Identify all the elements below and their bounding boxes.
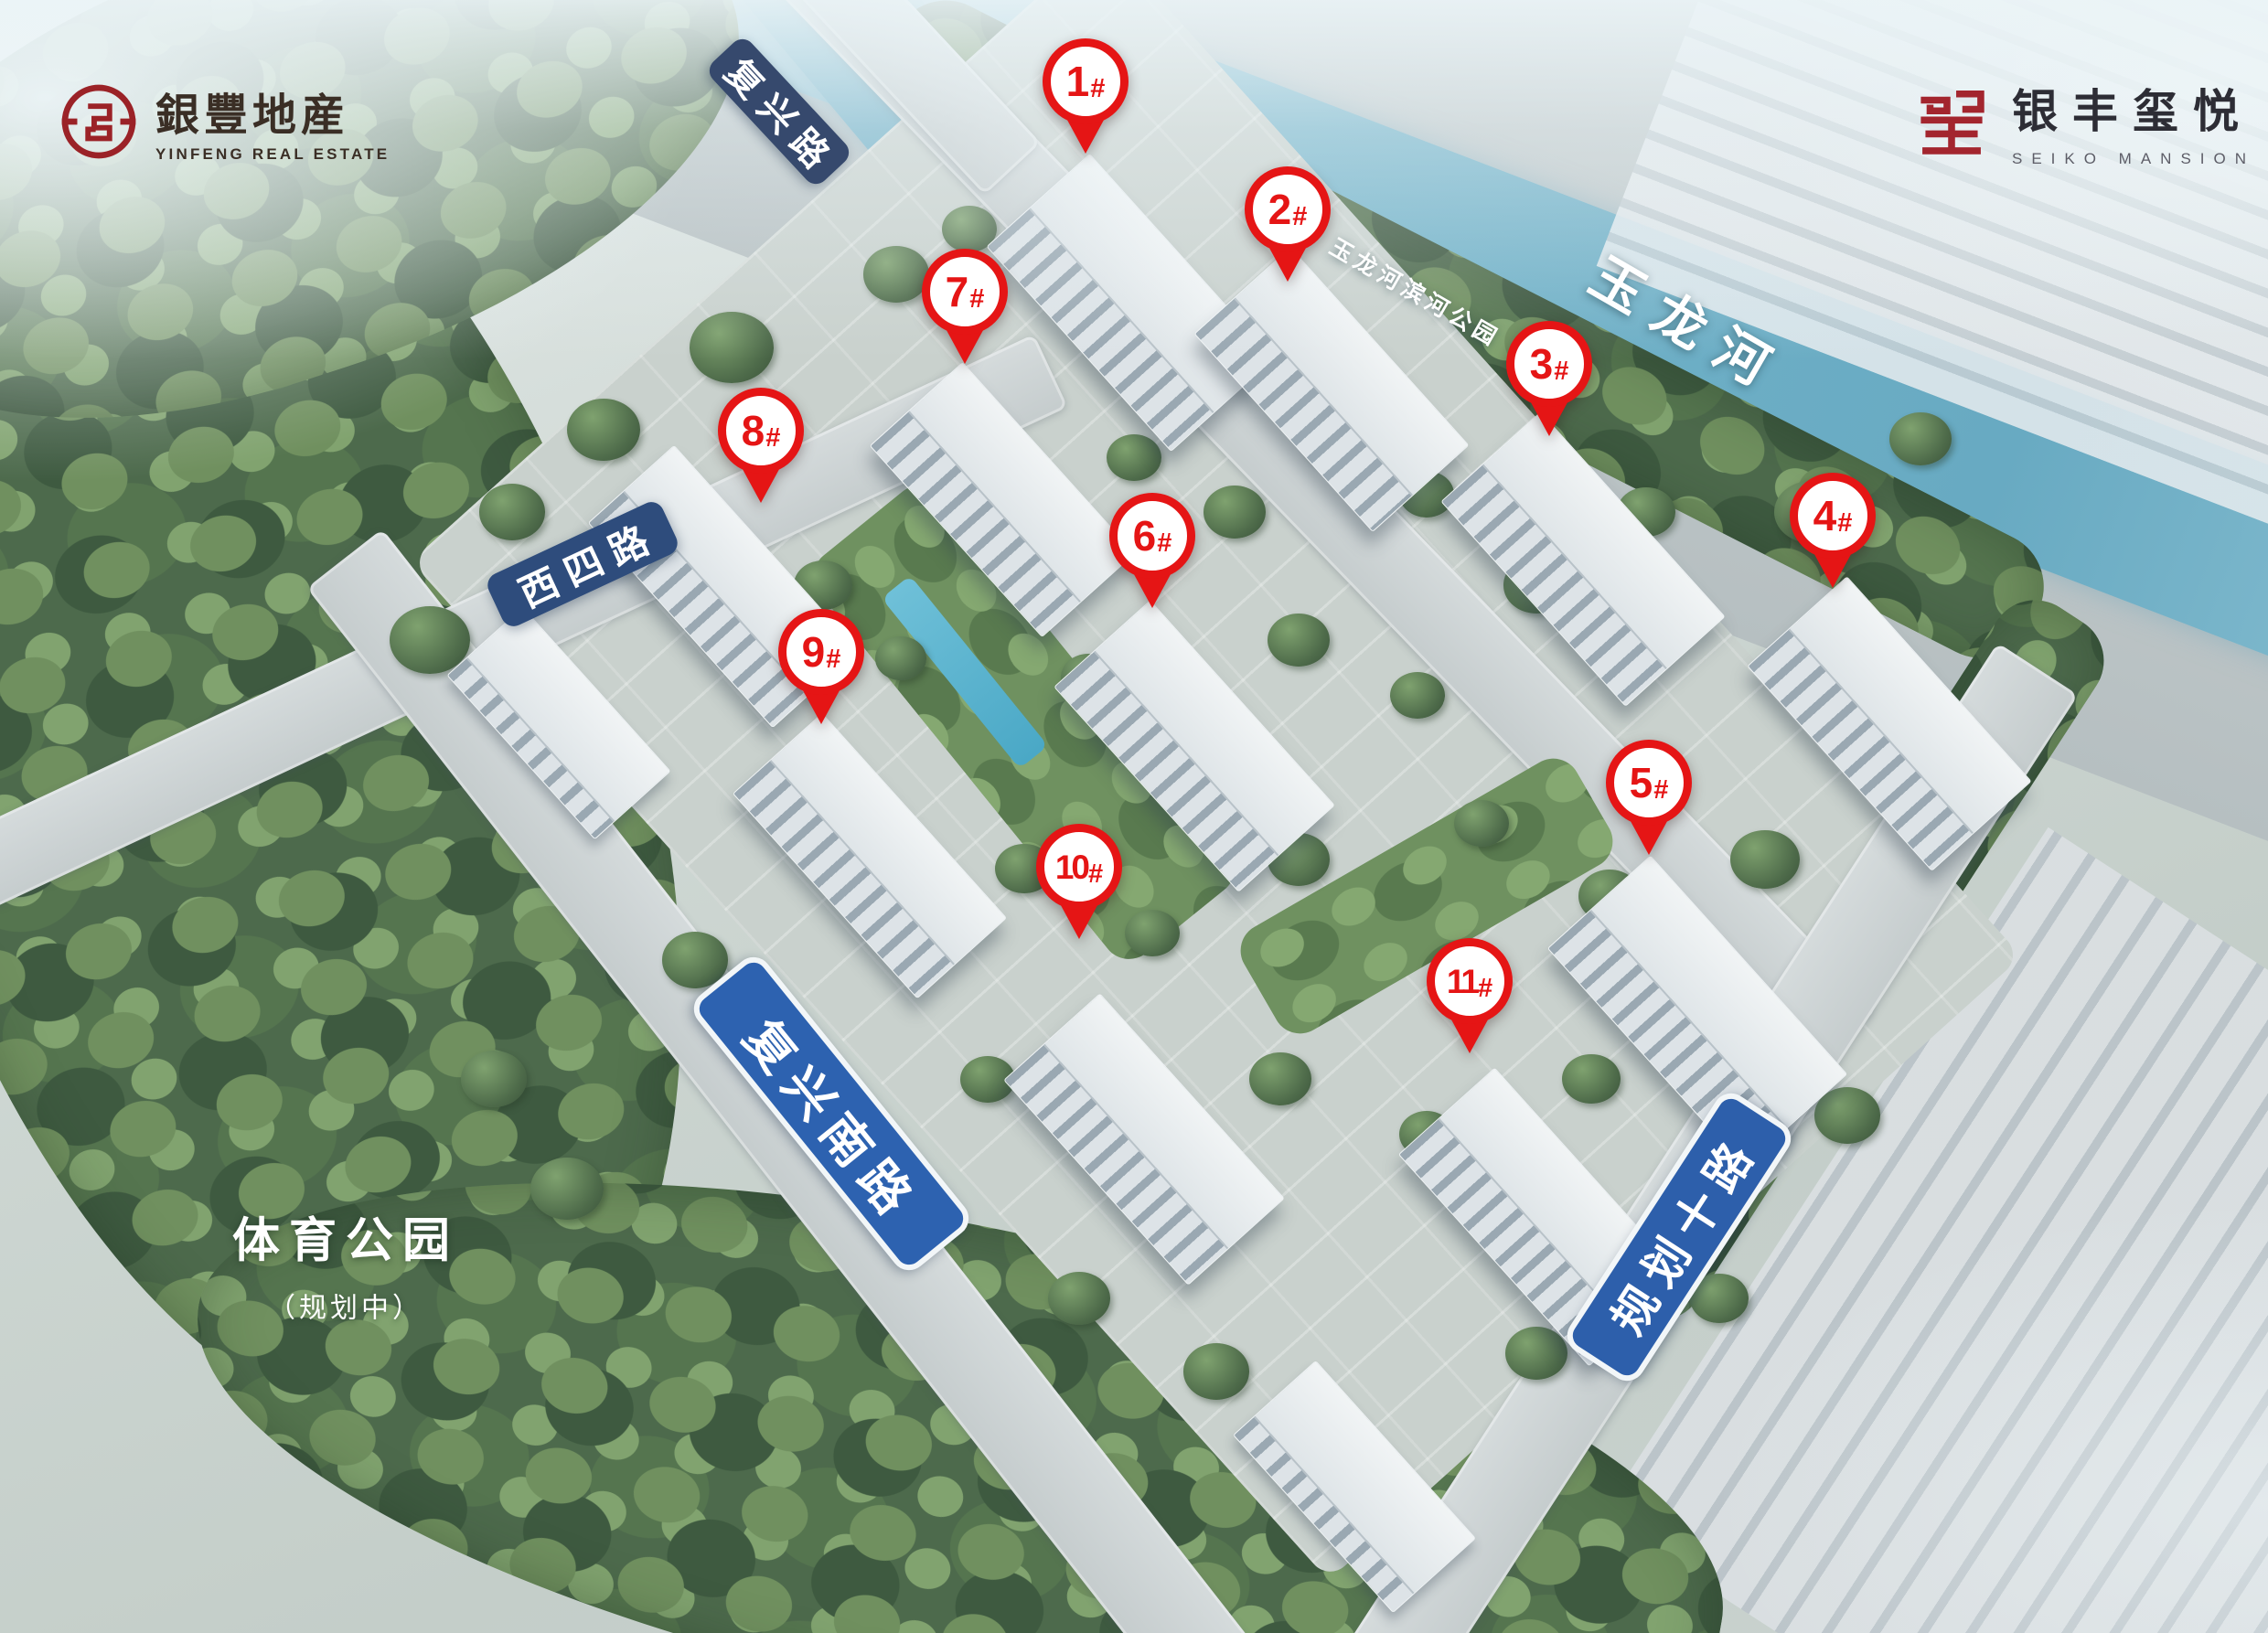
- pin-head: 10#: [1036, 824, 1122, 910]
- tree: [1107, 434, 1161, 481]
- tree: [1814, 1087, 1880, 1143]
- tree: [530, 1158, 604, 1220]
- tree: [1562, 1054, 1621, 1104]
- pin-number: 11: [1447, 965, 1477, 998]
- pin-hash-sign: #: [969, 286, 984, 313]
- pin-head: 3#: [1506, 321, 1592, 407]
- pin-hash-sign: #: [765, 425, 780, 452]
- pin-number: 3: [1530, 343, 1554, 385]
- tree: [1690, 1274, 1749, 1323]
- building-pin-2[interactable]: 2#: [1245, 166, 1331, 282]
- project-logo: 银丰玺悦 SEIKO MANSION: [1913, 75, 2255, 168]
- tree: [1125, 910, 1180, 956]
- tree: [875, 636, 926, 680]
- tree: [1730, 830, 1800, 890]
- tree: [1249, 1052, 1311, 1105]
- pin-hash-sign: #: [1157, 530, 1171, 557]
- tree: [662, 932, 728, 987]
- building-pin-3[interactable]: 3#: [1506, 321, 1592, 436]
- tree: [1505, 1327, 1567, 1380]
- pin-hash-sign: #: [1090, 76, 1105, 102]
- pin-head: 9#: [778, 609, 864, 695]
- pin-hash-sign: #: [1653, 777, 1668, 804]
- pin-number: 10: [1055, 850, 1087, 884]
- pin-head: 4#: [1790, 473, 1876, 559]
- pin-hash-sign: #: [1088, 861, 1103, 888]
- building-pin-10[interactable]: 10#: [1036, 824, 1122, 939]
- pin-head: 7#: [922, 249, 1008, 335]
- tree: [1390, 672, 1445, 719]
- building-pin-4[interactable]: 4#: [1790, 473, 1876, 588]
- pin-head: 6#: [1109, 493, 1195, 579]
- building-pin-1[interactable]: 1#: [1043, 38, 1129, 154]
- yinfeng-seal-icon: [60, 83, 137, 160]
- pin-head: 5#: [1606, 740, 1692, 826]
- sports-park-label: 体育公园 （规划中）: [232, 1202, 459, 1326]
- tree: [1454, 800, 1509, 847]
- pin-number: 2: [1268, 188, 1292, 230]
- pin-hash-sign: #: [1292, 204, 1307, 230]
- pin-head: 1#: [1043, 38, 1129, 124]
- building-pin-9[interactable]: 9#: [778, 609, 864, 724]
- sports-park-status: （规划中）: [232, 1286, 459, 1326]
- project-name-cn: 银丰玺悦: [2012, 75, 2255, 141]
- pin-hash-sign: #: [1554, 358, 1568, 385]
- tree: [863, 246, 929, 302]
- tree: [1268, 614, 1330, 667]
- developer-name-cn: 銀豐地産: [155, 79, 390, 143]
- scenery-layer: [0, 0, 2268, 1633]
- pin-hash-sign: #: [1478, 976, 1492, 1002]
- pin-number: 5: [1630, 762, 1653, 804]
- project-name-en: SEIKO MANSION: [2012, 150, 2255, 168]
- pin-head: 11#: [1427, 938, 1513, 1024]
- site-map: 玉龙河 玉龙河滨河公园 体育公园 （规划中） 銀豐地産 YINFENG REAL…: [0, 0, 2268, 1633]
- tree: [1048, 1272, 1110, 1325]
- developer-logo: 銀豐地産 YINFENG REAL ESTATE: [60, 79, 390, 164]
- pin-number: 7: [946, 271, 969, 313]
- developer-name-en: YINFENG REAL ESTATE: [155, 145, 390, 164]
- building-pin-6[interactable]: 6#: [1109, 493, 1195, 608]
- tree: [757, 1027, 816, 1076]
- building-pin-8[interactable]: 8#: [718, 388, 804, 503]
- pin-number: 1: [1066, 60, 1090, 102]
- pin-head: 2#: [1245, 166, 1331, 252]
- building-pin-5[interactable]: 5#: [1606, 740, 1692, 855]
- tree: [461, 1051, 527, 1106]
- tree: [479, 484, 545, 539]
- pin-number: 9: [802, 631, 826, 673]
- tree: [1204, 486, 1266, 539]
- pin-number: 4: [1813, 495, 1837, 537]
- tree: [690, 312, 774, 383]
- building-pin-7[interactable]: 7#: [922, 249, 1008, 364]
- pin-number: 6: [1133, 515, 1157, 557]
- pin-head: 8#: [718, 388, 804, 474]
- building-pin-11[interactable]: 11#: [1427, 938, 1513, 1053]
- pin-number: 8: [742, 410, 765, 452]
- tree: [1889, 412, 1952, 465]
- pin-hash-sign: #: [826, 646, 840, 673]
- tree: [1183, 1343, 1249, 1399]
- sports-park-name: 体育公园: [232, 1202, 459, 1271]
- tree: [567, 399, 640, 461]
- pin-hash-sign: #: [1837, 510, 1852, 537]
- seiko-mansion-mark-icon: [1913, 83, 1990, 160]
